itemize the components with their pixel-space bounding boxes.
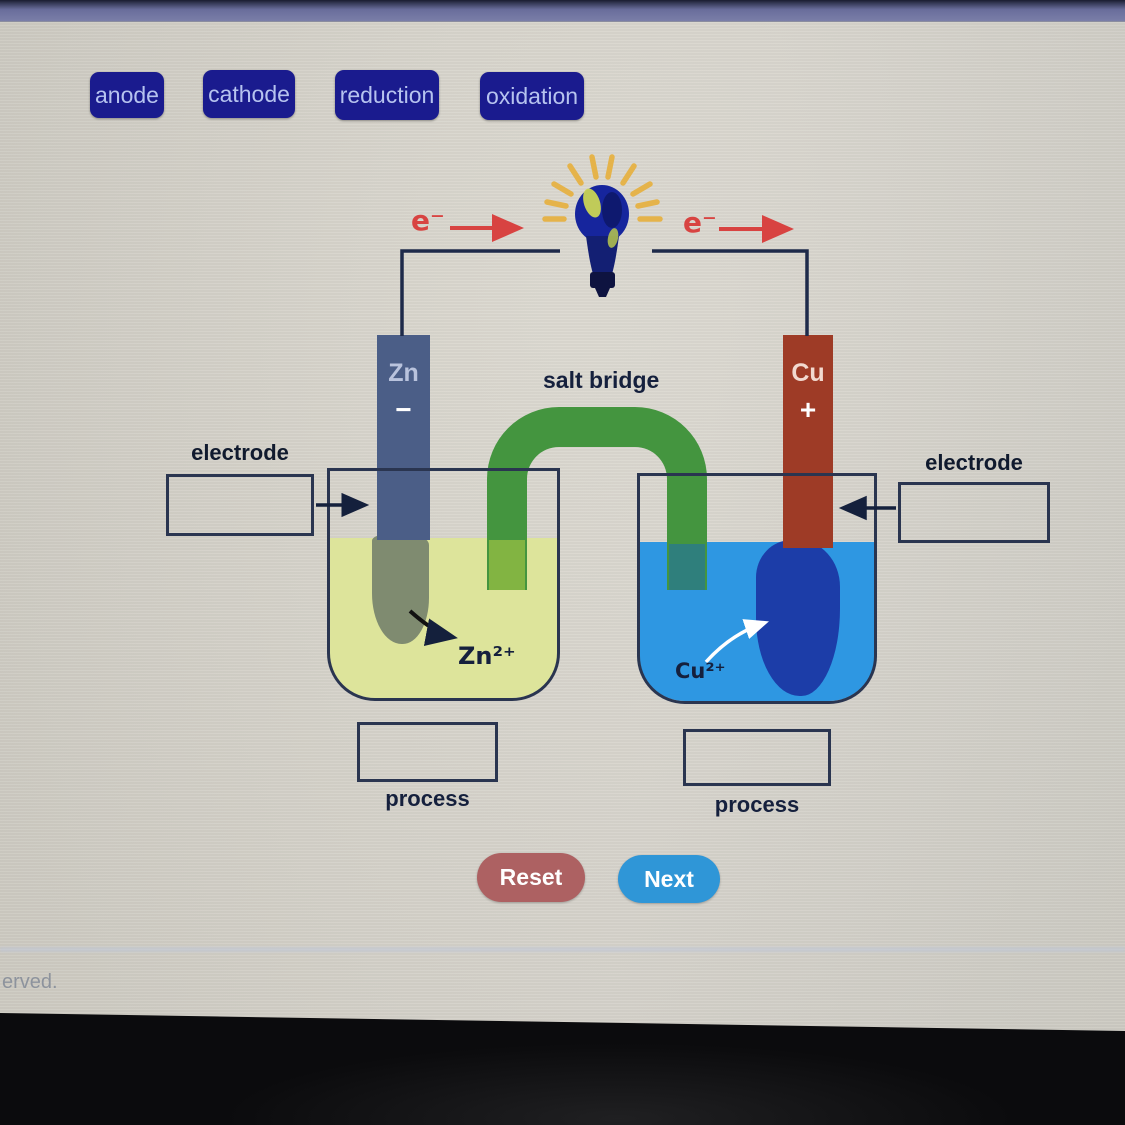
reset-button[interactable]: Reset xyxy=(477,853,585,902)
right-beaker-outline xyxy=(637,473,877,704)
photographed-screen: anode cathode reduction oxidation Zn − C… xyxy=(0,0,1125,1125)
word-chip-oxidation[interactable]: oxidation xyxy=(480,72,584,120)
copper-ion-label: Cu²⁺ xyxy=(675,659,726,683)
word-chip-anode[interactable]: anode xyxy=(90,72,164,118)
electrode-drop-box-left[interactable] xyxy=(166,474,314,536)
process-drop-box-right[interactable] xyxy=(683,729,831,786)
process-caption-right: process xyxy=(683,792,831,818)
copyright-partial-text: erved. xyxy=(2,971,58,994)
left-beaker-outline xyxy=(327,468,560,701)
bulb-rays-icon xyxy=(545,157,660,219)
circuit-wire xyxy=(402,251,807,336)
zinc-charge-sign: − xyxy=(377,394,430,426)
salt-bridge-label: salt bridge xyxy=(543,367,659,394)
browser-top-bar xyxy=(0,0,1125,22)
electrode-drop-box-right[interactable] xyxy=(898,482,1050,543)
process-drop-box-left[interactable] xyxy=(357,722,498,782)
copper-charge-sign: + xyxy=(783,394,833,426)
word-chip-cathode[interactable]: cathode xyxy=(203,70,295,118)
lesson-page-background: anode cathode reduction oxidation Zn − C… xyxy=(0,0,1125,1040)
next-button[interactable]: Next xyxy=(618,855,720,903)
electrode-caption-right: electrode xyxy=(898,450,1050,476)
zinc-ion-label: Zn²⁺ xyxy=(458,642,516,670)
word-chip-reduction[interactable]: reduction xyxy=(335,70,439,120)
electron-label-right: e⁻ xyxy=(683,206,717,239)
copper-symbol: Cu xyxy=(783,359,833,388)
light-bulb-icon xyxy=(575,185,629,297)
zinc-symbol: Zn xyxy=(377,359,430,388)
electrode-caption-left: electrode xyxy=(166,440,314,466)
electron-label-left: e⁻ xyxy=(411,204,445,237)
process-caption-left: process xyxy=(357,786,498,812)
footer-divider-line xyxy=(0,947,1125,952)
